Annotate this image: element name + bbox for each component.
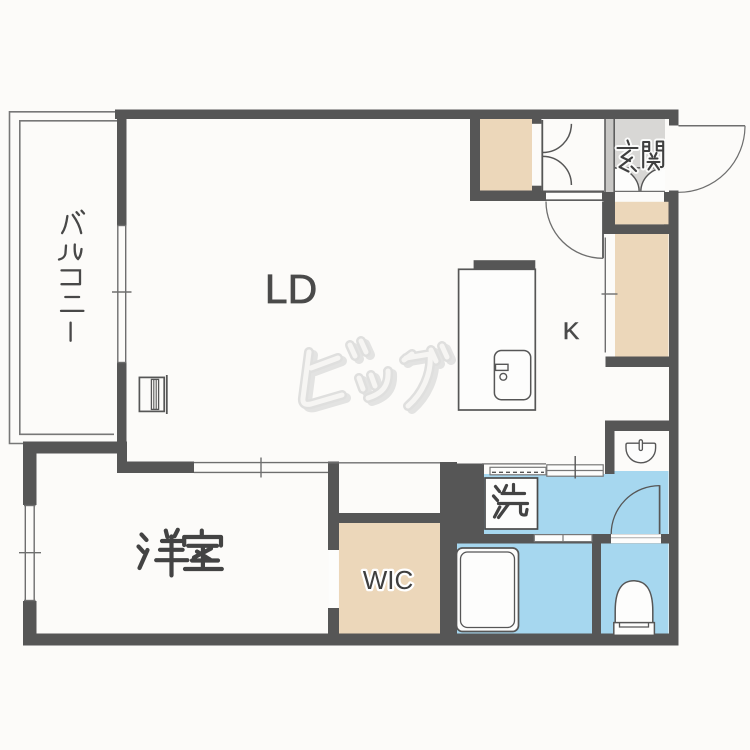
svg-text:K: K — [563, 318, 580, 345]
svg-text:WIC: WIC — [363, 565, 414, 595]
svg-text:LD: LD — [265, 266, 317, 312]
